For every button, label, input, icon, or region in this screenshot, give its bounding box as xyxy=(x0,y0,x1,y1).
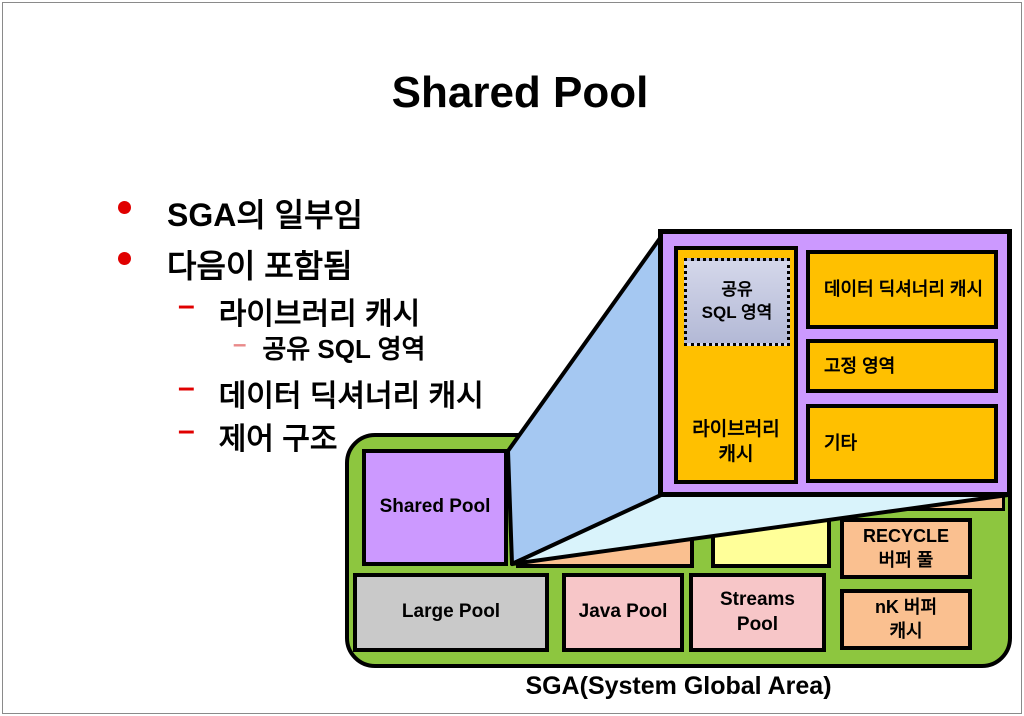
slide: Shared Pool SGA의 일부임 다음이 포함됨 – 라이브러리 캐시 … xyxy=(0,0,1024,716)
bullet-label: 데이터 딕셔너리 캐시 xyxy=(219,371,484,415)
bullet-item: 다음이 포함됨 xyxy=(118,241,353,287)
bullet-subitem: – 라이브러리 캐시 xyxy=(178,289,420,333)
sga-caption: SGA(System Global Area) xyxy=(345,672,1012,701)
box-label: 기타 xyxy=(824,431,857,455)
box-label: Large Pool xyxy=(402,600,500,625)
box-label: SQL 영역 xyxy=(702,302,773,325)
sga-box-nk-buffer-cache: nK 버퍼 캐시 xyxy=(840,589,972,650)
box-label: Pool xyxy=(737,613,778,638)
sga-box-streams-pool: Streams Pool xyxy=(689,573,826,652)
sga-box-java-pool: Java Pool xyxy=(562,573,684,652)
dash-icon: – xyxy=(178,289,195,323)
sga-box-recycle-buffer-pool: RECYCLE 버퍼 풀 xyxy=(840,518,972,579)
bullet-label: 라이브러리 캐시 xyxy=(219,289,421,333)
box-label: RECYCLE xyxy=(863,525,949,548)
box-label: 버퍼 풀 xyxy=(879,549,934,572)
bullet-subitem: – 데이터 딕셔너리 캐시 xyxy=(178,371,484,415)
bullet-label: 제어 구조 xyxy=(219,414,338,458)
detail-box-other: 기타 xyxy=(806,404,998,483)
sga-box-buffer-pool-partial xyxy=(516,505,694,568)
dash-icon: – xyxy=(178,414,195,448)
bullet-label: 다음이 포함됨 xyxy=(167,241,353,287)
box-label: 데이터 딕셔너리 캐시 xyxy=(824,277,983,301)
box-label: nK 버퍼 xyxy=(875,596,937,619)
bullet-label: SGA의 일부임 xyxy=(167,190,363,236)
sga-box-large-pool: Large Pool xyxy=(353,573,549,652)
bullet-subitem: – 제어 구조 xyxy=(178,414,337,458)
bullet-item: SGA의 일부임 xyxy=(118,190,363,236)
box-label: 공유 xyxy=(721,279,752,302)
bullet-dot-icon xyxy=(118,201,131,214)
detail-box-fixed-area: 고정 영역 xyxy=(806,339,998,393)
box-label: 캐시 xyxy=(719,442,754,468)
box-label: 캐시 xyxy=(889,620,922,643)
bullet-label: 공유 SQL 영역 xyxy=(262,329,425,366)
box-label: 고정 영역 xyxy=(824,354,895,378)
box-label: Java Pool xyxy=(579,600,668,625)
box-label: Shared Pool xyxy=(380,495,491,520)
bullet-dot-icon xyxy=(118,252,131,265)
detail-box-data-dictionary-cache: 데이터 딕셔너리 캐시 xyxy=(806,250,998,329)
box-label: Streams xyxy=(720,588,795,613)
bullet-subsubitem: – 공유 SQL 영역 xyxy=(233,329,425,366)
dash-icon: – xyxy=(178,371,195,405)
sga-box-buffer-cache-partial xyxy=(711,505,831,568)
box-label: 라이브러리 xyxy=(692,417,779,443)
sga-box-shared-pool: Shared Pool xyxy=(362,449,508,566)
slide-title: Shared Pool xyxy=(0,68,1024,118)
shared-pool-detail-view: 라이브러리 캐시 공유 SQL 영역 데이터 딕셔너리 캐시 고정 영역 기타 xyxy=(658,229,1012,497)
dash-icon: – xyxy=(233,331,246,359)
detail-box-shared-sql-area: 공유 SQL 영역 xyxy=(684,258,790,346)
